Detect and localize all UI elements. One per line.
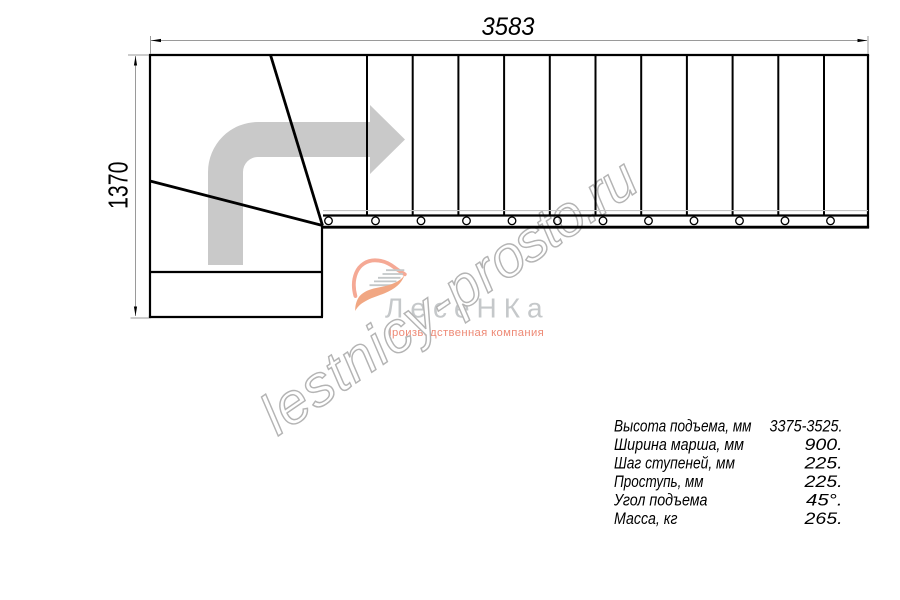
svg-text:225.: 225. [803, 454, 842, 473]
svg-text:Высота подъема, мм: Высота подъема, мм [614, 417, 752, 436]
svg-text:900.: 900. [805, 435, 843, 454]
svg-text:45°.: 45°. [806, 491, 843, 510]
svg-text:1370: 1370 [103, 162, 134, 210]
svg-text:Масса, кг: Масса, кг [614, 509, 678, 528]
svg-text:3583: 3583 [482, 13, 535, 41]
svg-text:Угол подъема: Угол подъема [613, 491, 707, 510]
svg-text:225.: 225. [803, 472, 842, 491]
svg-text:3375-3525.: 3375-3525. [770, 417, 843, 436]
svg-text:265.: 265. [803, 509, 842, 528]
svg-text:Шаг ступеней, мм: Шаг ступеней, мм [614, 454, 735, 473]
svg-text:Проступь, мм: Проступь, мм [614, 472, 704, 491]
svg-text:Ширина марша, мм: Ширина марша, мм [614, 435, 744, 454]
